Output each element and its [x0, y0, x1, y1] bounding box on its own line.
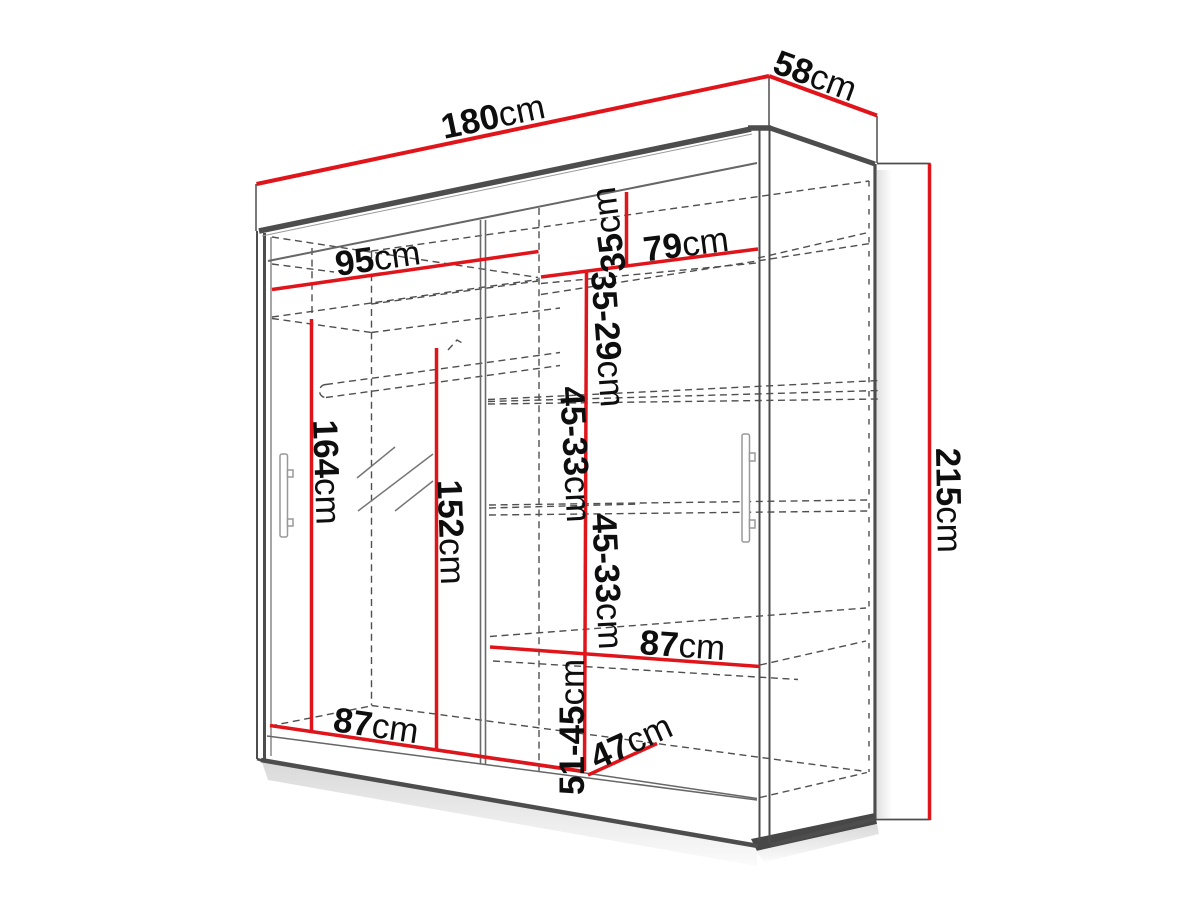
- svg-text:215cm: 215cm: [928, 447, 969, 553]
- svg-text:152cm: 152cm: [430, 479, 473, 585]
- svg-text:45-33cm: 45-33cm: [552, 385, 598, 523]
- svg-text:164cm: 164cm: [305, 419, 348, 525]
- svg-text:51-45cm: 51-45cm: [553, 659, 592, 795]
- svg-text:45-33cm: 45-33cm: [584, 512, 630, 650]
- svg-text:87cm: 87cm: [638, 623, 726, 668]
